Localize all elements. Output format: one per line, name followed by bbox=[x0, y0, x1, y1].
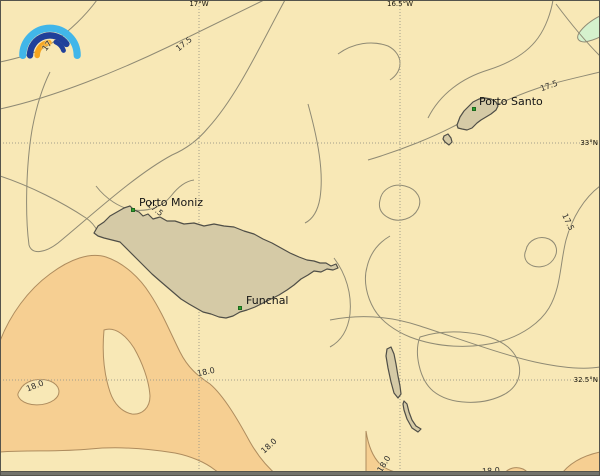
rainbow-weather-logo bbox=[10, 9, 90, 65]
weather-map-window: 17°W16.5°W33°N32.5°N1717.517.517.517.518… bbox=[0, 0, 600, 476]
logo-inner-left-arc bbox=[37, 43, 49, 56]
window-bottom-edge bbox=[0, 471, 600, 476]
sst-map-canvas[interactable] bbox=[0, 0, 600, 476]
